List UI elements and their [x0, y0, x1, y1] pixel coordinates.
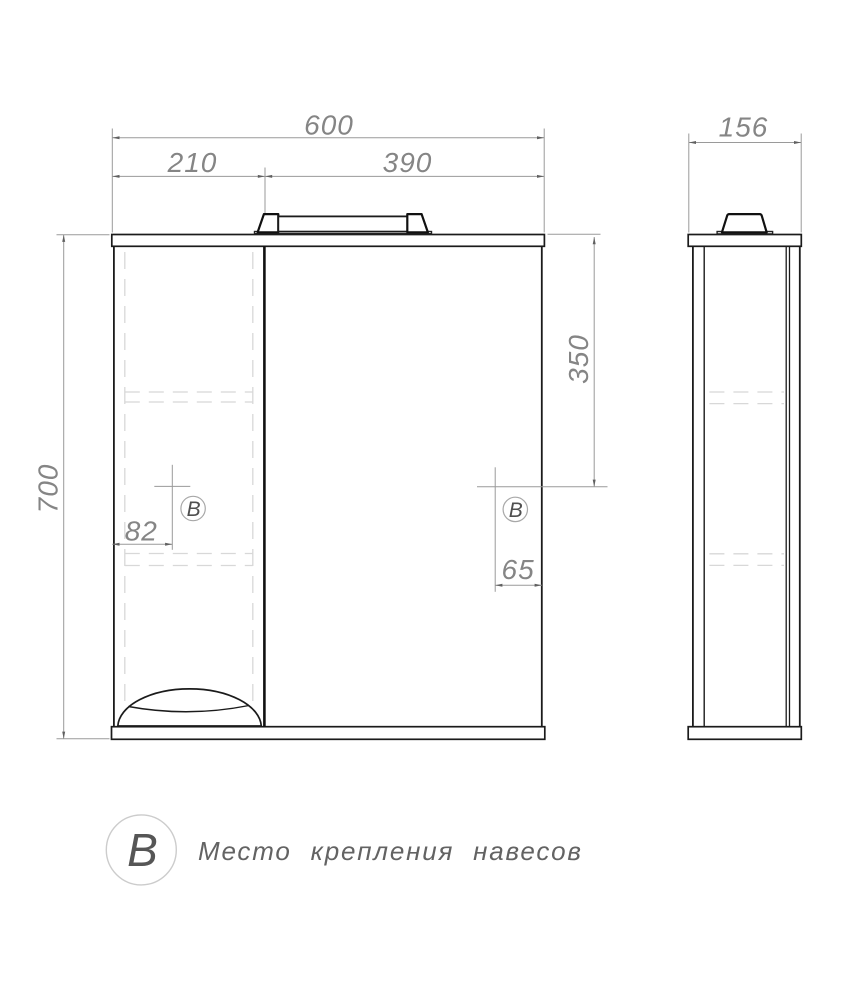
svg-text:700: 700: [33, 464, 64, 514]
svg-text:B: B: [509, 499, 523, 522]
svg-text:B: B: [127, 824, 158, 876]
svg-text:156: 156: [719, 112, 769, 143]
svg-text:600: 600: [304, 109, 354, 140]
svg-text:82: 82: [125, 515, 158, 546]
svg-text:390: 390: [383, 147, 433, 178]
svg-text:Место крепления навесов: Место крепления навесов: [198, 836, 583, 866]
svg-text:65: 65: [502, 554, 535, 585]
svg-text:350: 350: [563, 334, 594, 384]
svg-text:210: 210: [167, 147, 218, 178]
svg-text:B: B: [187, 498, 201, 521]
